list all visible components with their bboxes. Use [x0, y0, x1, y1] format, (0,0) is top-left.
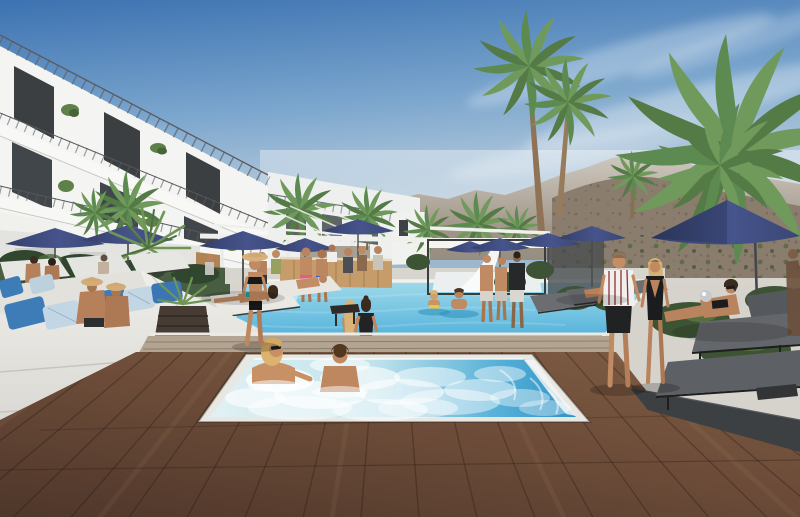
- resort-pool-scene: [0, 0, 800, 517]
- far-right-silhouette: [786, 249, 800, 336]
- person: [343, 248, 353, 273]
- person: [373, 246, 383, 270]
- person: [271, 250, 281, 274]
- silver-ball: [700, 290, 712, 302]
- person: [357, 246, 367, 271]
